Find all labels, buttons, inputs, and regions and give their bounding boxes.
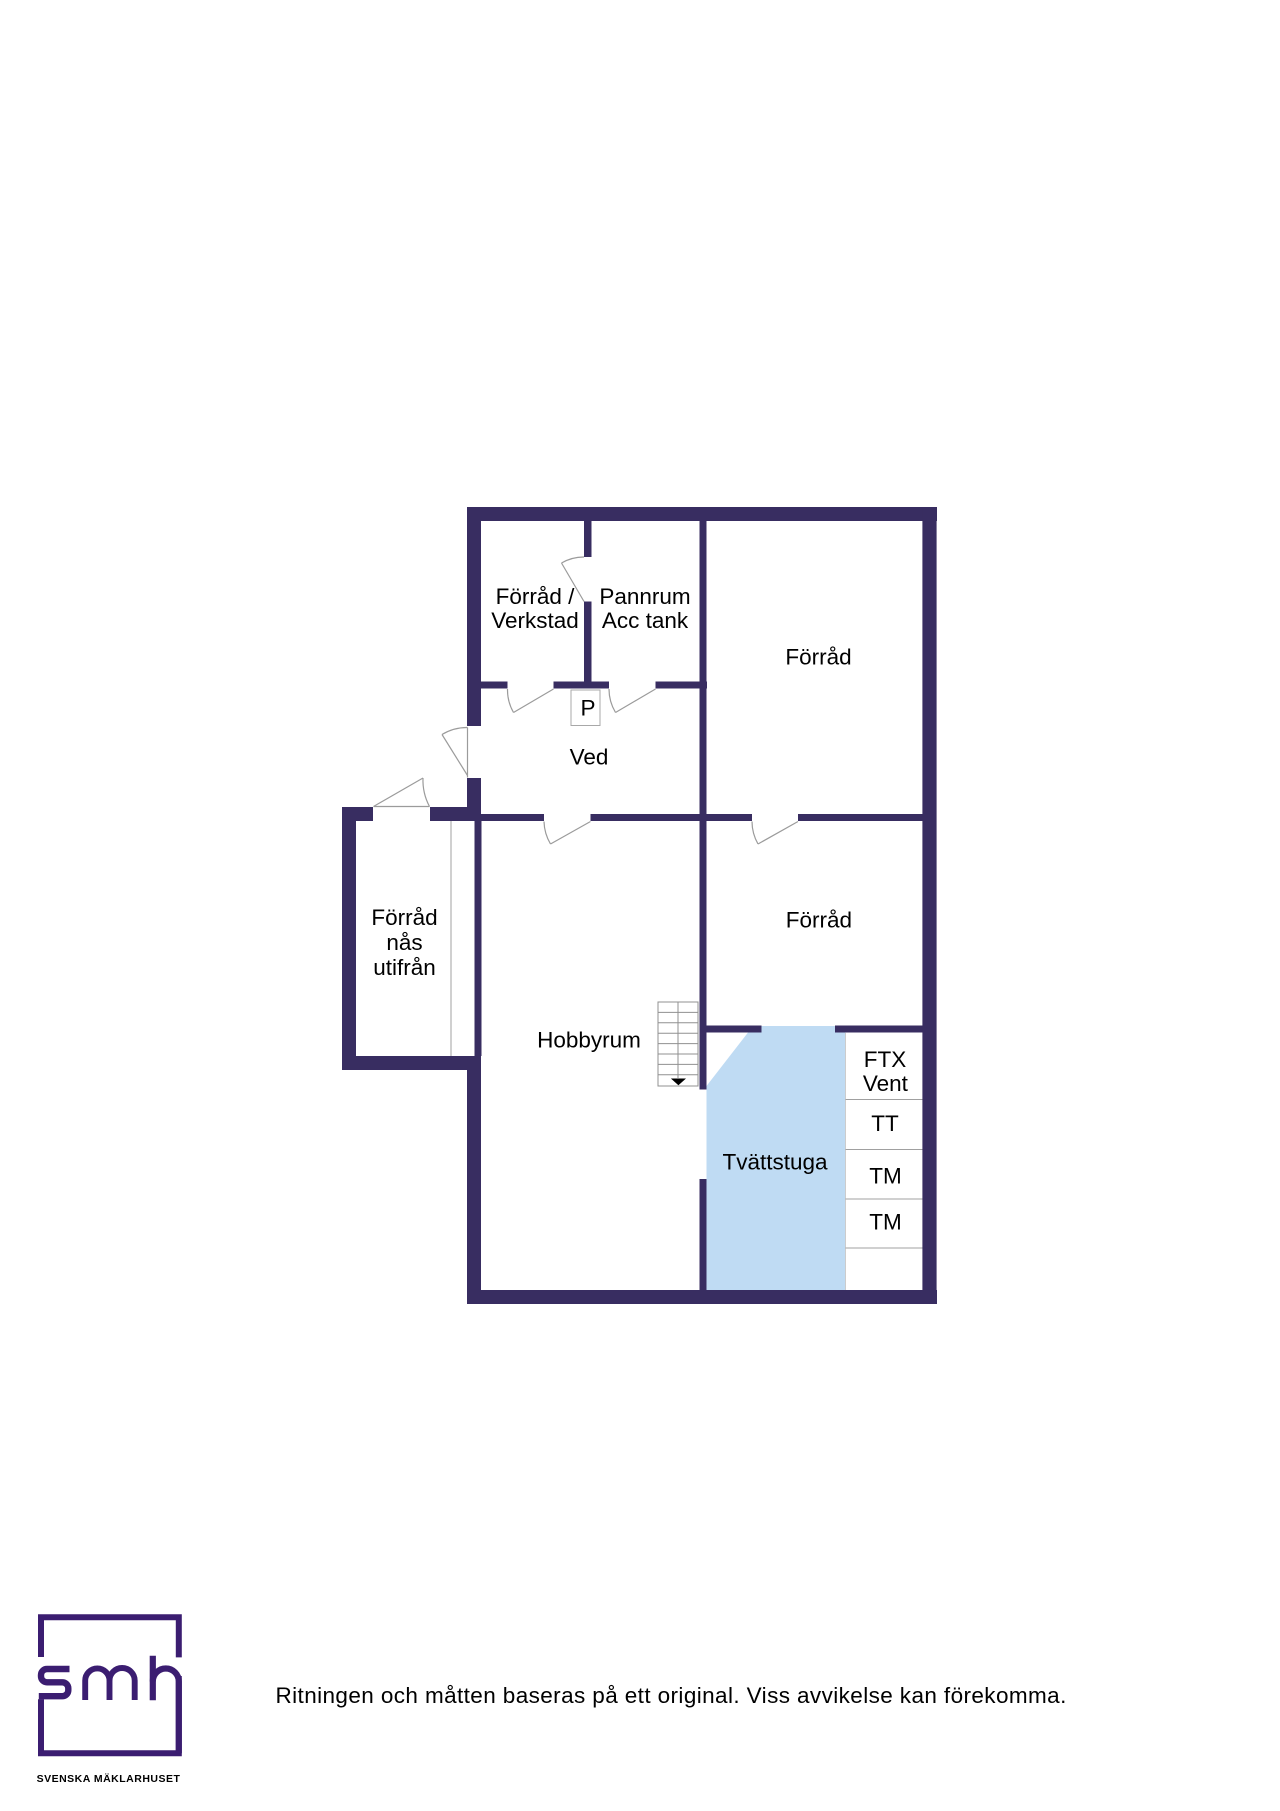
svg-text:Förråd: Förråd [371, 905, 437, 930]
svg-text:TT: TT [871, 1111, 899, 1136]
svg-text:TM: TM [869, 1164, 902, 1189]
svg-text:P: P [580, 696, 595, 721]
svg-text:Förråd: Förråd [785, 645, 851, 670]
svg-text:Pannrum: Pannrum [599, 584, 690, 609]
svg-text:SVENSKA MÄKLARHUSET: SVENSKA MÄKLARHUSET [37, 1772, 181, 1785]
svg-text:Förråd /: Förråd / [496, 584, 576, 609]
svg-text:TM: TM [869, 1210, 902, 1235]
svg-text:Tvättstuga: Tvättstuga [722, 1150, 828, 1175]
svg-text:FTX: FTX [864, 1047, 907, 1072]
svg-text:Förråd: Förråd [786, 908, 852, 933]
svg-text:Vent: Vent [863, 1071, 909, 1096]
svg-text:Acc tank: Acc tank [602, 608, 689, 633]
svg-text:Ritningen och måtten baseras p: Ritningen och måtten baseras på ett orig… [276, 1683, 1067, 1708]
svg-text:utifrån: utifrån [373, 955, 436, 980]
svg-text:Verkstad: Verkstad [491, 608, 579, 633]
svg-text:Hobbyrum: Hobbyrum [537, 1028, 641, 1053]
svg-text:nås: nås [386, 930, 422, 955]
svg-text:Ved: Ved [570, 745, 609, 770]
